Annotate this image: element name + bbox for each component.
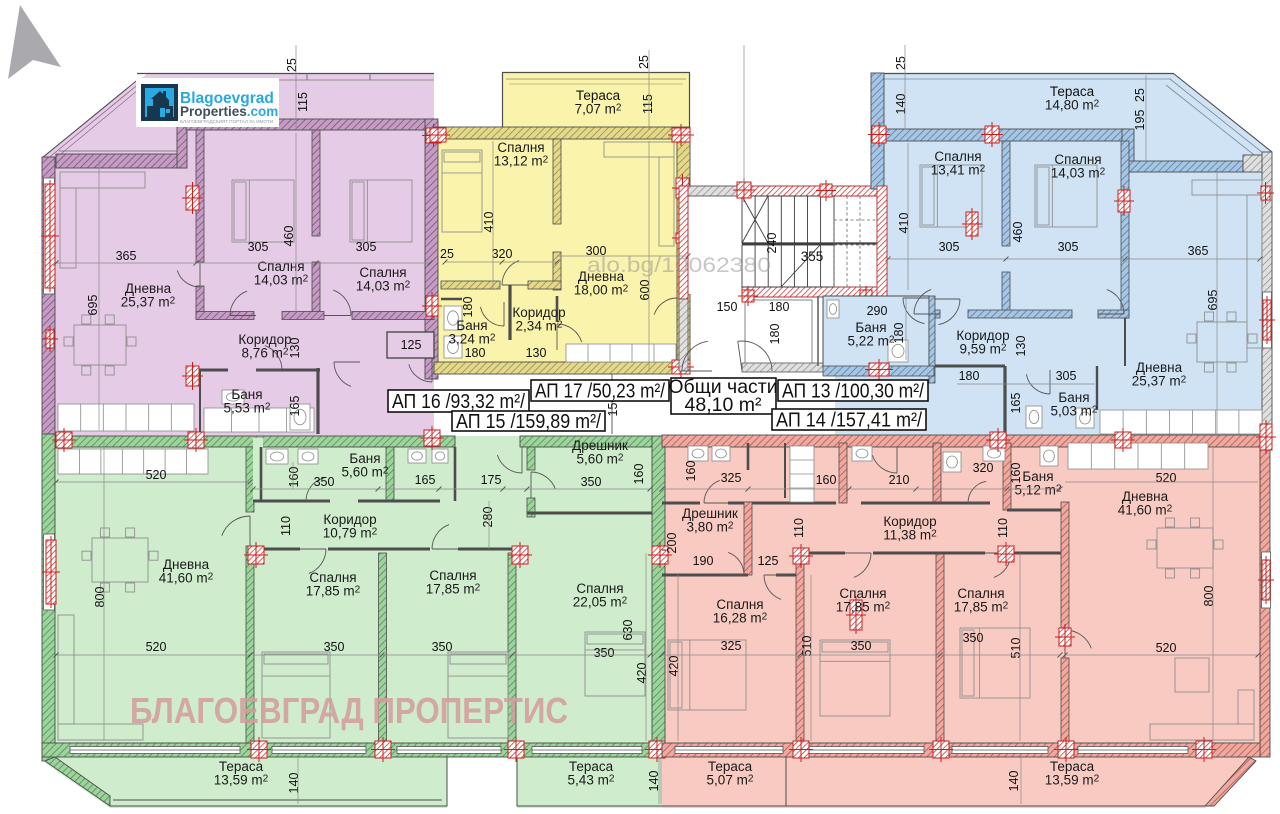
svg-text:5,53 m2: 5,53 m2 xyxy=(224,401,271,416)
svg-text:195: 195 xyxy=(1133,110,1147,131)
svg-text:350: 350 xyxy=(851,639,872,653)
svg-text:17,85 m2: 17,85 m2 xyxy=(426,582,481,597)
svg-text:АП 17 /50,23 m²/: АП 17 /50,23 m²/ xyxy=(535,381,665,403)
svg-text:460: 460 xyxy=(1011,222,1025,243)
svg-text:305: 305 xyxy=(1058,240,1079,254)
svg-text:305: 305 xyxy=(939,240,960,254)
svg-text:17,85 m2: 17,85 m2 xyxy=(954,600,1009,615)
svg-text:125: 125 xyxy=(401,338,422,352)
svg-text:305: 305 xyxy=(248,240,269,254)
svg-text:9,59 m2: 9,59 m2 xyxy=(960,342,1007,357)
svg-text:13,12 m2: 13,12 m2 xyxy=(494,154,549,169)
svg-text:41,60 m2: 41,60 m2 xyxy=(1118,503,1173,518)
svg-text:305: 305 xyxy=(1056,369,1077,383)
svg-text:АП 13 /100,30 m²/: АП 13 /100,30 m²/ xyxy=(782,381,924,403)
svg-text:695: 695 xyxy=(1206,290,1220,311)
svg-text:350: 350 xyxy=(963,631,984,645)
svg-text:165: 165 xyxy=(1009,393,1023,414)
svg-text:800: 800 xyxy=(93,587,107,608)
svg-text:125: 125 xyxy=(758,554,779,568)
svg-text:13,59 m2: 13,59 m2 xyxy=(214,773,269,788)
svg-text:410: 410 xyxy=(897,213,911,234)
svg-text:695: 695 xyxy=(86,295,100,316)
svg-text:520: 520 xyxy=(1156,471,1177,485)
svg-text:18,00 m2: 18,00 m2 xyxy=(574,283,629,298)
svg-text:180: 180 xyxy=(769,300,790,314)
svg-text:305: 305 xyxy=(356,240,377,254)
svg-text:5,43 m2: 5,43 m2 xyxy=(568,773,615,788)
svg-text:410: 410 xyxy=(482,212,496,233)
svg-text:8,76 m2: 8,76 m2 xyxy=(242,346,289,361)
svg-text:365: 365 xyxy=(1188,244,1209,258)
svg-text:АП 15 /159,89 m²/: АП 15 /159,89 m²/ xyxy=(456,411,601,433)
svg-text:240: 240 xyxy=(765,233,779,254)
svg-text:5,22 m2: 5,22 m2 xyxy=(848,334,895,349)
svg-text:41,60 m2: 41,60 m2 xyxy=(159,571,214,586)
svg-text:160: 160 xyxy=(816,473,837,487)
svg-text:420: 420 xyxy=(635,663,649,684)
svg-text:13,41 m2: 13,41 m2 xyxy=(931,163,986,178)
svg-text:520: 520 xyxy=(1156,641,1177,655)
svg-text:7,07 m2: 7,07 m2 xyxy=(575,102,622,117)
svg-text:325: 325 xyxy=(721,639,742,653)
svg-text:800: 800 xyxy=(1202,586,1216,607)
svg-text:БЛАГОЕВГРАДСКИЯТ ПОРТАЛ ЗА ИМО: БЛАГОЕВГРАДСКИЯТ ПОРТАЛ ЗА ИМОТИ xyxy=(180,119,273,124)
svg-text:16,28 m2: 16,28 m2 xyxy=(713,611,768,626)
svg-text:48,10 m²: 48,10 m² xyxy=(685,394,762,416)
svg-text:365: 365 xyxy=(116,249,137,263)
svg-text:350: 350 xyxy=(432,640,453,654)
svg-text:25: 25 xyxy=(1133,88,1147,102)
svg-text:13,59 m2: 13,59 m2 xyxy=(1045,773,1100,788)
svg-text:165: 165 xyxy=(288,396,302,417)
svg-text:350: 350 xyxy=(581,475,602,489)
svg-text:325: 325 xyxy=(721,471,742,485)
svg-text:140: 140 xyxy=(1007,771,1021,792)
svg-text:630: 630 xyxy=(621,620,635,641)
svg-text:180: 180 xyxy=(465,346,486,360)
svg-text:5,03 m2: 5,03 m2 xyxy=(1051,404,1098,419)
svg-text:14,03 m2: 14,03 m2 xyxy=(356,279,411,294)
svg-text:22,05 m2: 22,05 m2 xyxy=(573,595,628,610)
svg-text:320: 320 xyxy=(492,247,513,261)
svg-text:180: 180 xyxy=(768,324,782,345)
svg-text:17,85 m2: 17,85 m2 xyxy=(306,584,361,599)
svg-text:5,07 m2: 5,07 m2 xyxy=(707,773,754,788)
svg-text:160: 160 xyxy=(1009,463,1023,484)
svg-text:350: 350 xyxy=(314,475,335,489)
svg-text:350: 350 xyxy=(324,640,345,654)
svg-text:110: 110 xyxy=(279,516,293,536)
svg-text:175: 175 xyxy=(481,473,502,487)
svg-text:140: 140 xyxy=(287,773,301,794)
svg-text:25: 25 xyxy=(894,56,908,70)
svg-text:25: 25 xyxy=(285,58,299,72)
svg-text:АП 16 /93,32 m²/: АП 16 /93,32 m²/ xyxy=(392,391,525,413)
svg-text:160: 160 xyxy=(287,467,301,488)
svg-text:290: 290 xyxy=(867,304,888,318)
svg-text:14,03 m2: 14,03 m2 xyxy=(254,273,309,288)
svg-text:160: 160 xyxy=(684,461,698,482)
svg-text:420: 420 xyxy=(667,656,681,677)
svg-text:355: 355 xyxy=(801,249,824,264)
svg-text:5,12 m2: 5,12 m2 xyxy=(1015,483,1062,498)
svg-text:25,37 m2: 25,37 m2 xyxy=(121,295,176,310)
svg-text:5,60 m2: 5,60 m2 xyxy=(342,465,389,480)
svg-text:130: 130 xyxy=(1014,336,1028,357)
svg-text:2,34 m2: 2,34 m2 xyxy=(516,319,563,334)
svg-text:10,79 m2: 10,79 m2 xyxy=(323,526,378,541)
svg-text:110: 110 xyxy=(792,518,806,538)
svg-text:3,80 m2: 3,80 m2 xyxy=(687,520,734,535)
svg-text:280: 280 xyxy=(481,507,495,528)
svg-text:180: 180 xyxy=(959,369,980,383)
svg-text:600: 600 xyxy=(638,280,652,301)
svg-text:25,37 m2: 25,37 m2 xyxy=(1132,374,1187,389)
svg-text:3,24 m2: 3,24 m2 xyxy=(449,332,496,347)
svg-text:350: 350 xyxy=(594,646,615,660)
svg-text:5,60 m2: 5,60 m2 xyxy=(577,452,624,467)
svg-text:БЛАГОЕВГРАД ПРОПЕРТИС: БЛАГОЕВГРАД ПРОПЕРТИС xyxy=(130,690,568,731)
svg-text:25: 25 xyxy=(440,247,454,261)
svg-text:520: 520 xyxy=(146,468,167,482)
svg-text:130: 130 xyxy=(526,346,547,360)
svg-text:АП 14 /157,41 m²/: АП 14 /157,41 m²/ xyxy=(776,410,922,432)
svg-text:115: 115 xyxy=(641,94,655,114)
svg-text:520: 520 xyxy=(146,640,167,654)
svg-text:460: 460 xyxy=(282,226,296,247)
svg-text:14,80 m2: 14,80 m2 xyxy=(1045,98,1100,113)
svg-text:140: 140 xyxy=(894,94,908,115)
svg-text:165: 165 xyxy=(415,473,436,487)
svg-text:320: 320 xyxy=(973,461,994,475)
svg-text:190: 190 xyxy=(693,554,714,568)
svg-text:115: 115 xyxy=(296,92,310,112)
svg-text:200: 200 xyxy=(665,533,679,554)
svg-text:11,38 m2: 11,38 m2 xyxy=(883,528,937,543)
svg-text:210: 210 xyxy=(889,473,910,487)
svg-text:Properties.com: Properties.com xyxy=(180,104,278,119)
svg-text:alo.bg/10062380: alo.bg/10062380 xyxy=(587,254,771,277)
svg-text:150: 150 xyxy=(717,300,738,314)
svg-text:110: 110 xyxy=(996,518,1010,538)
svg-text:180: 180 xyxy=(461,297,475,318)
svg-text:160: 160 xyxy=(632,464,646,485)
svg-text:14,03 m2: 14,03 m2 xyxy=(1051,166,1106,181)
svg-text:17,85 m2: 17,85 m2 xyxy=(836,600,891,615)
